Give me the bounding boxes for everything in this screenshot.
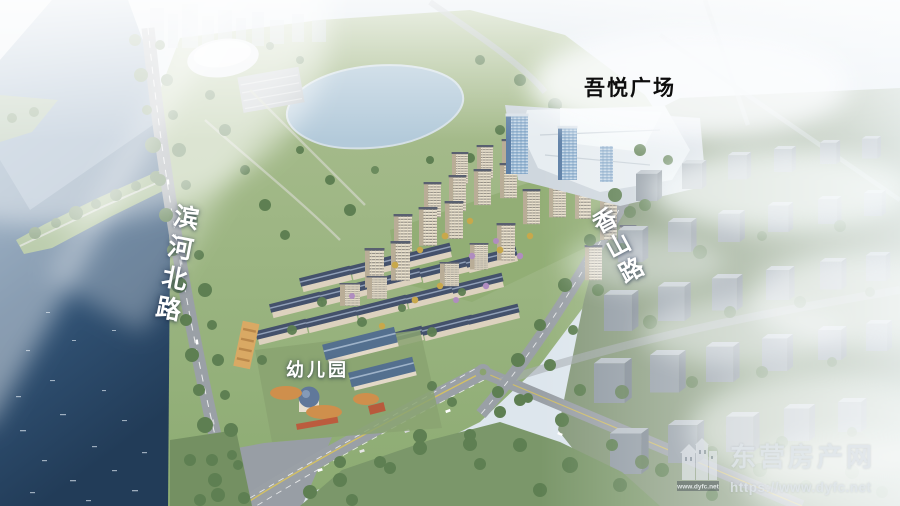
logo-building-icon [680, 438, 717, 480]
logo-caption: www.dyfc.net [676, 484, 719, 491]
watermark-site-name: 东营房产网 [730, 437, 875, 474]
scene-artwork [0, 0, 900, 506]
watermark-logo: www.dyfc.net [675, 437, 721, 493]
watermark-site-url: https://www.dyfc.net [730, 480, 875, 495]
kindergarten-label: 幼儿园 [286, 361, 349, 379]
mall-label: 吾悦广场 [584, 78, 676, 99]
watermark: www.dyfc.net 东营房产网 https://www.dyfc.net [675, 437, 875, 495]
aerial-rendering: 吾悦广场 滨河北路 香山路 幼儿园 www.dyfc.net 东营房产网 htt… [0, 0, 900, 506]
